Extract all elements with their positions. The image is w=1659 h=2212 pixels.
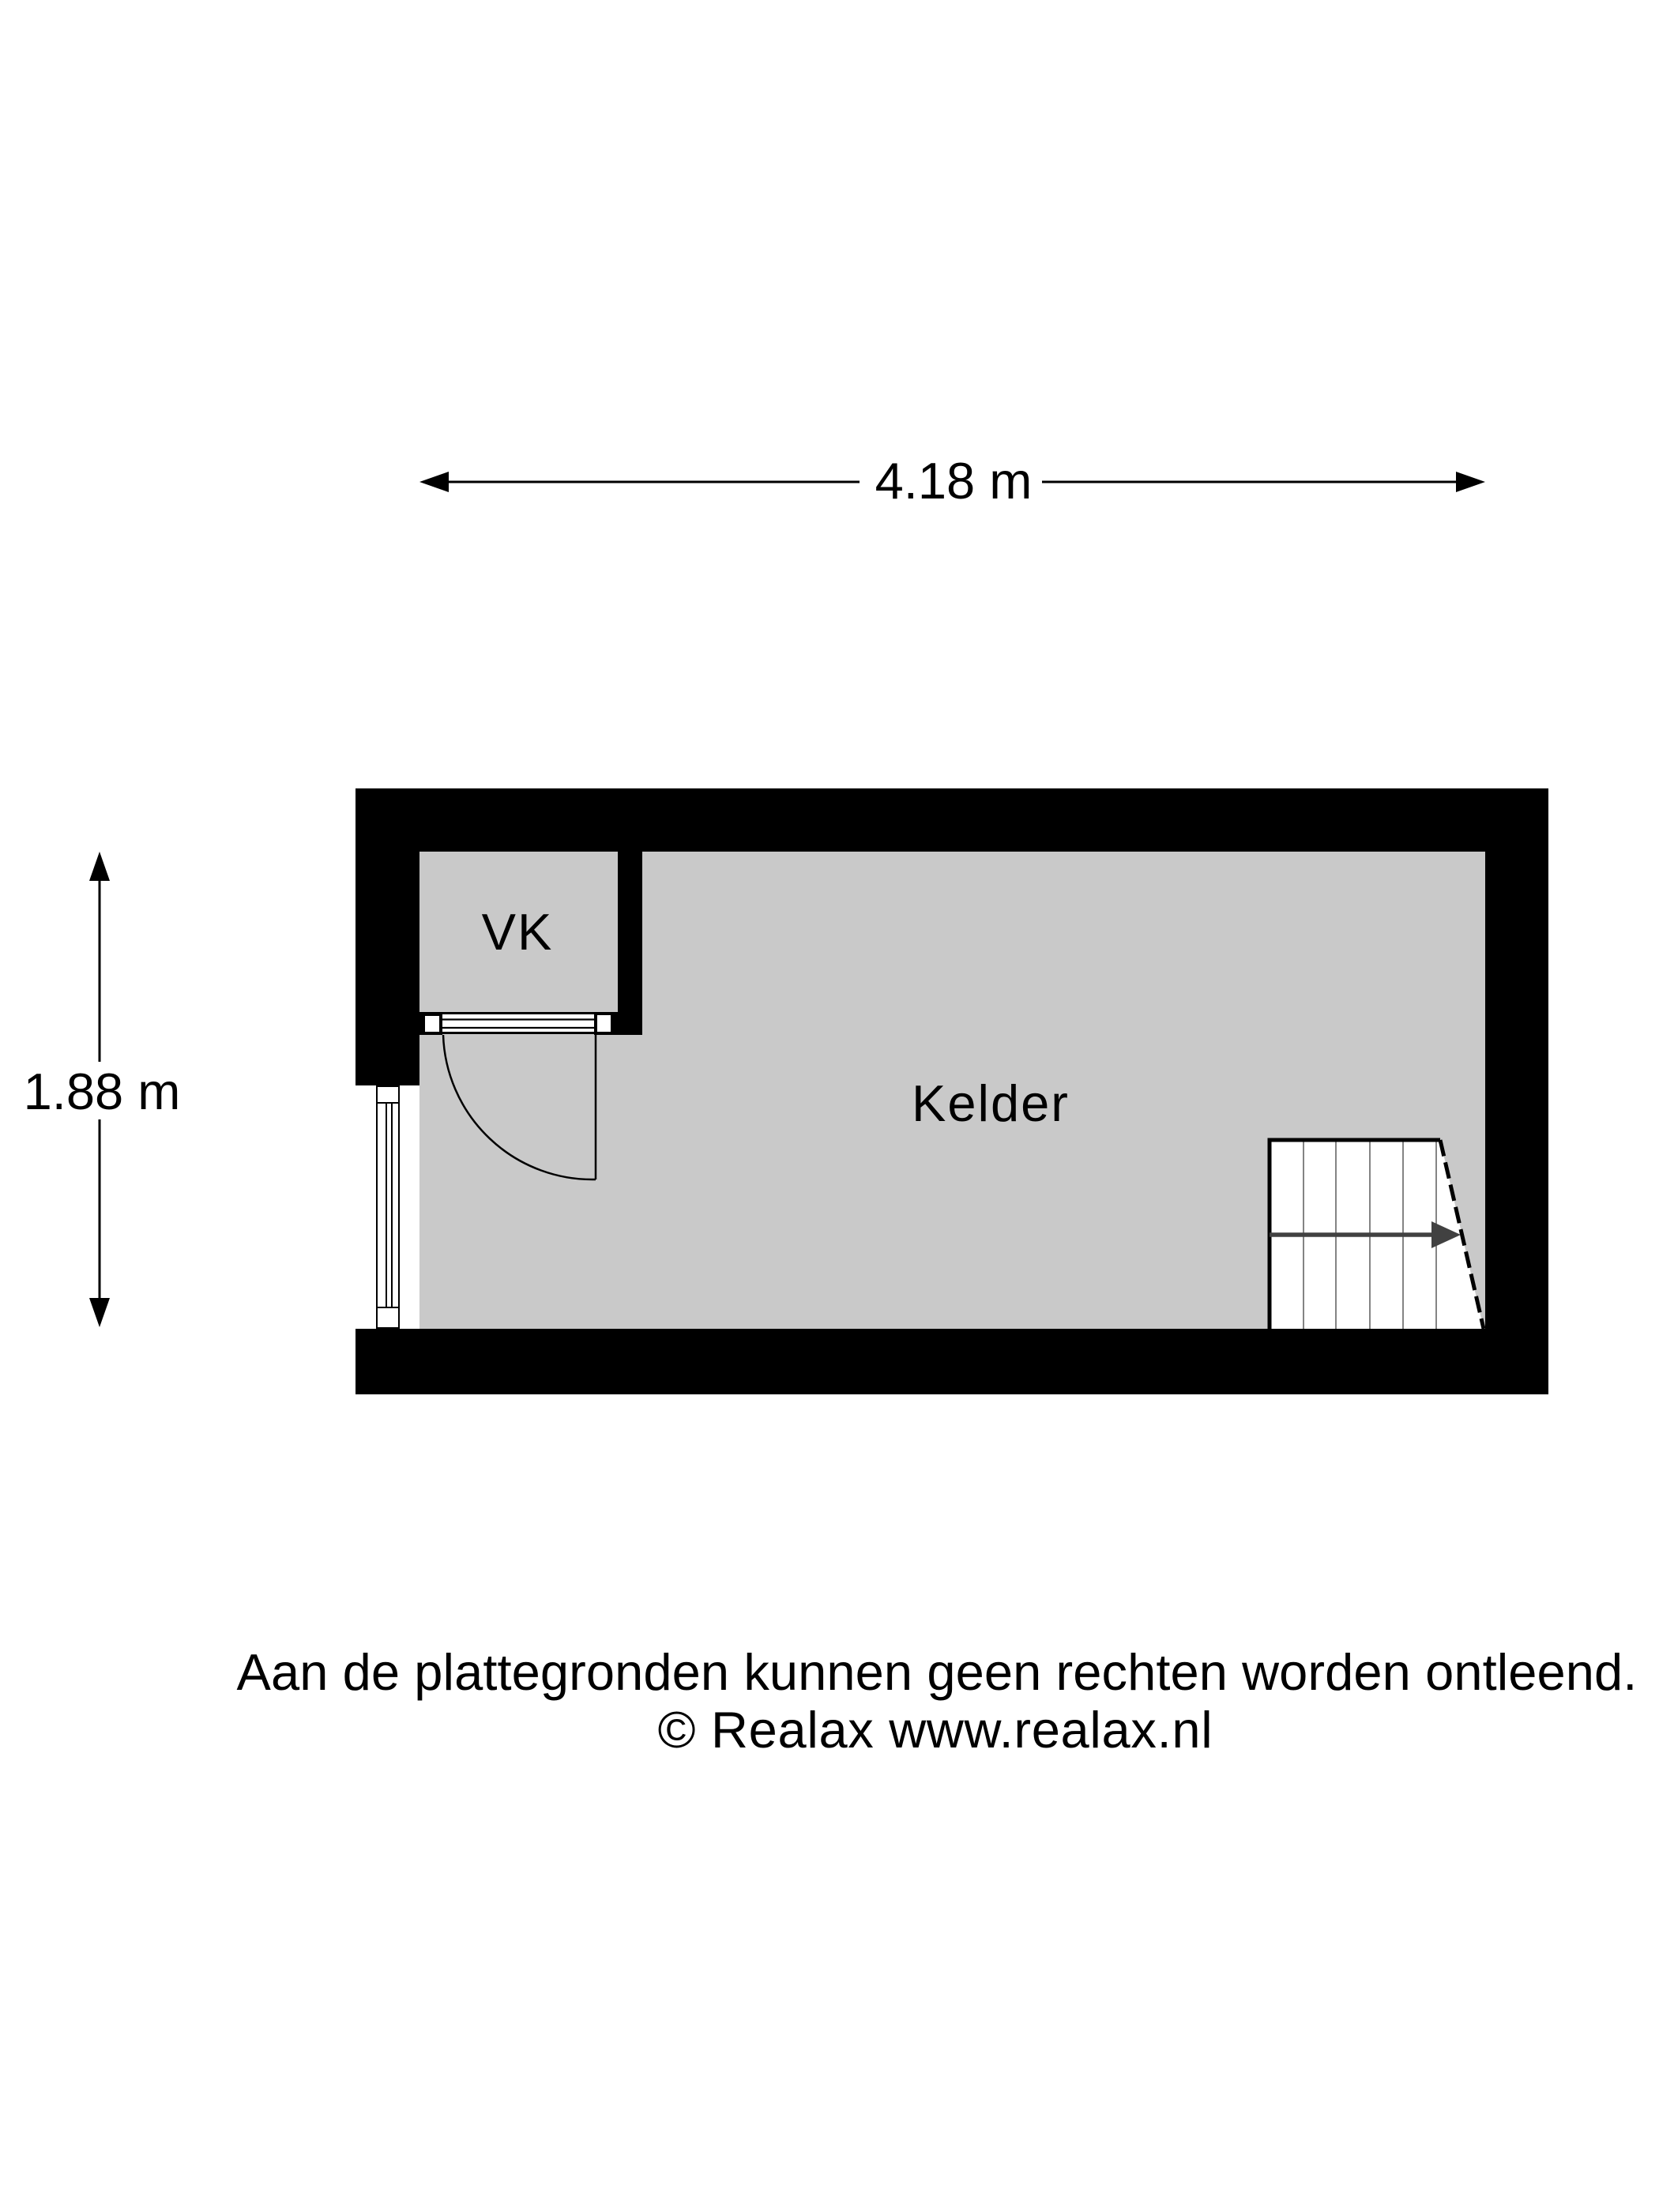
svg-text:1.88 m: 1.88 m [24, 1063, 181, 1120]
svg-text:4.18 m: 4.18 m [875, 452, 1033, 510]
svg-text:© Realax www.realax.nl: © Realax www.realax.nl [658, 1701, 1213, 1759]
svg-text:Kelder: Kelder [912, 1074, 1070, 1132]
svg-text:Aan de plattegronden kunnen ge: Aan de plattegronden kunnen geen rechten… [237, 1643, 1638, 1701]
svg-text:VK: VK [482, 903, 554, 961]
